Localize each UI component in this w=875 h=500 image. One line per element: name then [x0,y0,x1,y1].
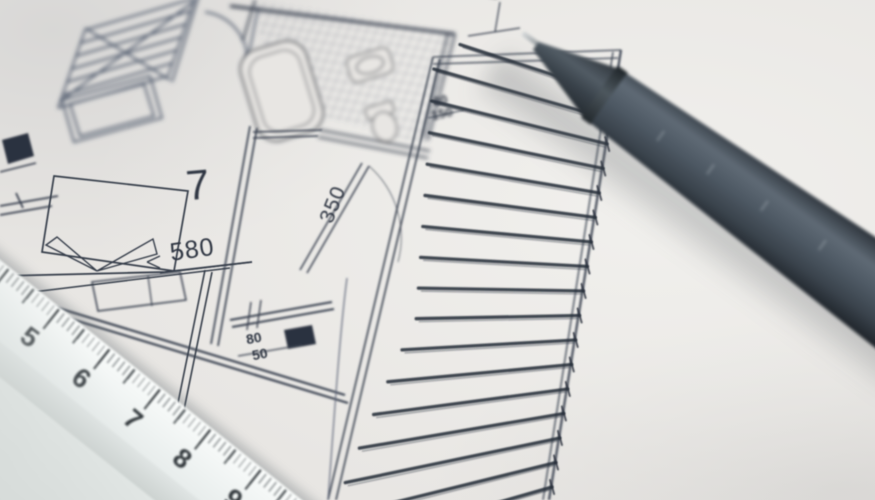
dimension-label-80-lower: 80 [245,330,263,347]
bathroom [230,0,455,158]
joist-line-echo [426,230,590,245]
joist-line-echo [377,392,566,418]
dimension-label-580: 580 [168,235,216,266]
room-number-label: 7 [184,163,211,207]
wall-section-fill [2,133,34,164]
dimension-arrow [147,256,160,268]
stair-landing [62,76,162,142]
blueprint-photo: 7 580 350 850 80 150 80 50 5 6 7 8 9 [0,0,875,500]
joist-line-echo [391,368,570,385]
wall-lower [230,302,334,327]
furniture-outline [42,176,188,271]
joist-line [416,316,579,319]
cabinet [92,272,186,311]
joist-line [425,195,595,217]
joist-line [374,389,568,415]
dimension-label-50: 50 [251,346,269,363]
stairs [58,0,258,142]
joist-line-echo [428,198,593,220]
joist-line [388,365,572,382]
joist-line [418,288,583,291]
joist-line [423,227,592,242]
